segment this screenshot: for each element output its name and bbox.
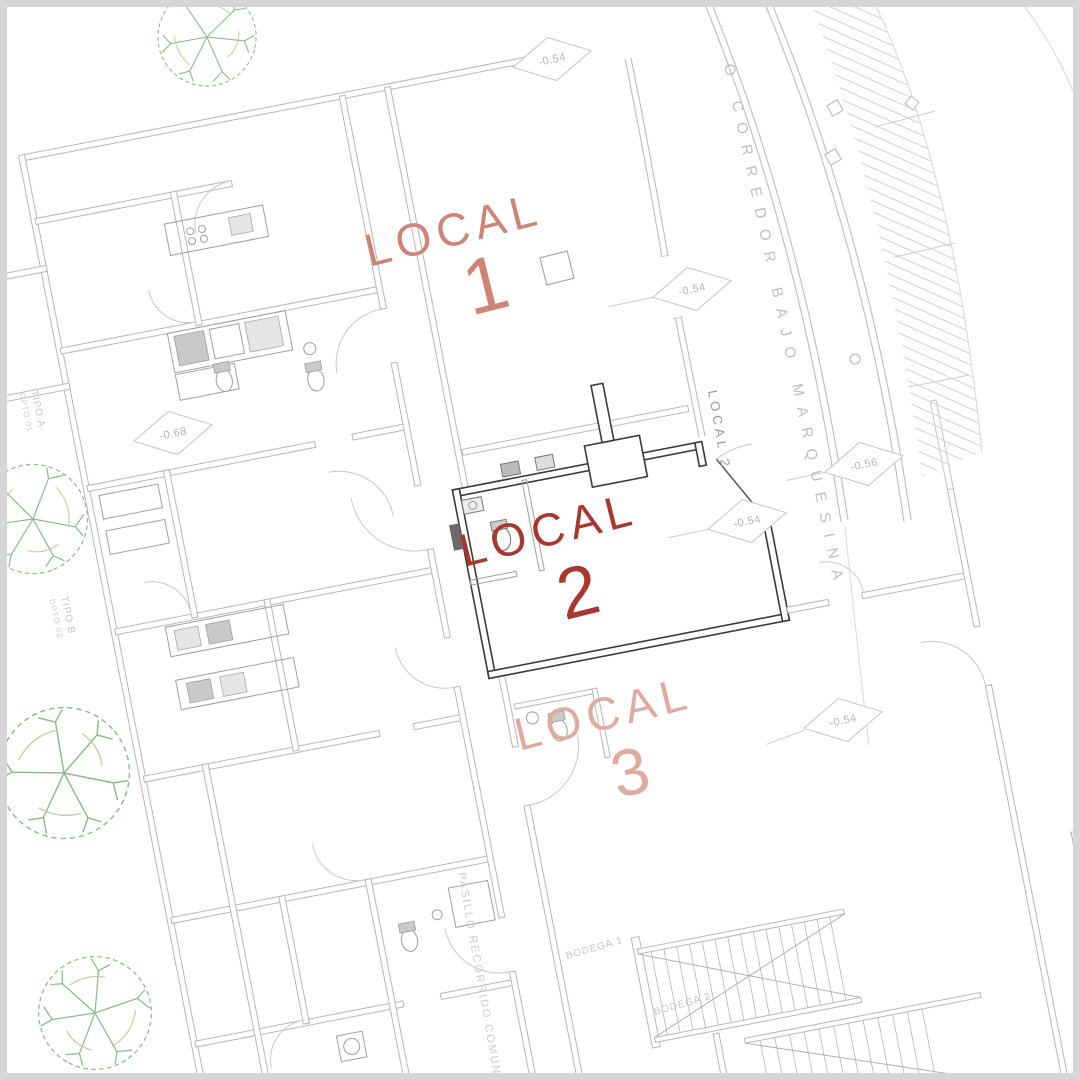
- storage-1-label: BODEGA 1: [565, 935, 624, 962]
- elevation-diamond: -0.56: [781, 434, 908, 502]
- trees: [7, 7, 267, 1073]
- type-a-tag: TIPO A DPTO 01: [17, 389, 47, 433]
- elevation-diamond: -0.54: [604, 259, 735, 328]
- unit-name: LOCAL: [454, 482, 642, 576]
- unit-label-local-1: LOCAL 1: [359, 182, 566, 353]
- unit-number: 2: [549, 548, 607, 635]
- type-b-tag: TIPO B DPTO 02: [47, 595, 77, 639]
- tree-icon: [147, 7, 267, 97]
- bottom-right-rooms: [1071, 794, 1073, 1073]
- unit-number: 3: [603, 731, 657, 812]
- curved-walkway: [700, 7, 1073, 745]
- floor-plan-sheet: -0.54 -0.54 -0.56 -0.54 -0.54 -0.68 LO: [0, 0, 1080, 1080]
- local2-door-tag: LOCAL 2: [705, 389, 734, 471]
- floor-plan: -0.54 -0.54 -0.56 -0.54 -0.54 -0.68 LO: [7, 7, 1073, 1073]
- unit-number: 1: [454, 236, 517, 332]
- tree-icon: [7, 681, 156, 865]
- unit-name: LOCAL: [359, 182, 547, 276]
- passage-label: PASILLO RECORRIDO COMUN A LT 2: [455, 871, 511, 1073]
- tree-icon: [7, 449, 103, 589]
- elevation-diamond: -0.68: [129, 403, 216, 463]
- stairs: [631, 875, 999, 1073]
- local1-facade: [625, 58, 705, 437]
- elevation-diamond: -0.54: [760, 690, 887, 758]
- unit-label-local-3: LOCAL 3: [509, 666, 715, 832]
- tree-icon: [18, 936, 172, 1073]
